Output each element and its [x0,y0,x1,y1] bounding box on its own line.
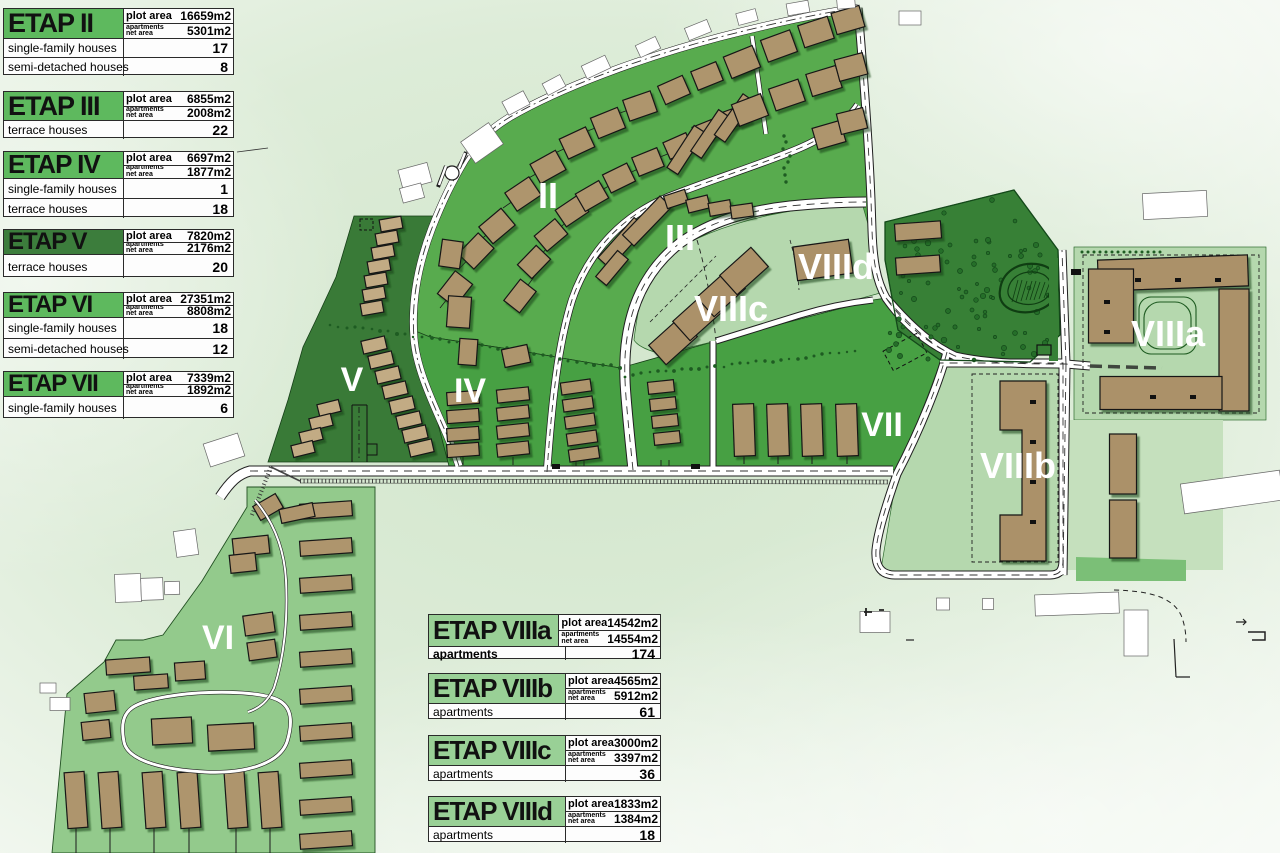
svg-text:III: III [665,217,695,258]
svg-text:VIIIc: VIIIc [694,288,768,329]
svg-text:VIIIa: VIIIa [1131,313,1206,354]
svg-text:II: II [538,175,558,216]
svg-text:VII: VII [861,406,903,444]
svg-text:VI: VI [202,619,234,657]
svg-text:V: V [341,361,364,399]
svg-text:VIIId: VIIId [798,246,874,287]
svg-text:VIIIb: VIIIb [980,445,1056,486]
svg-text:IV: IV [454,372,486,410]
